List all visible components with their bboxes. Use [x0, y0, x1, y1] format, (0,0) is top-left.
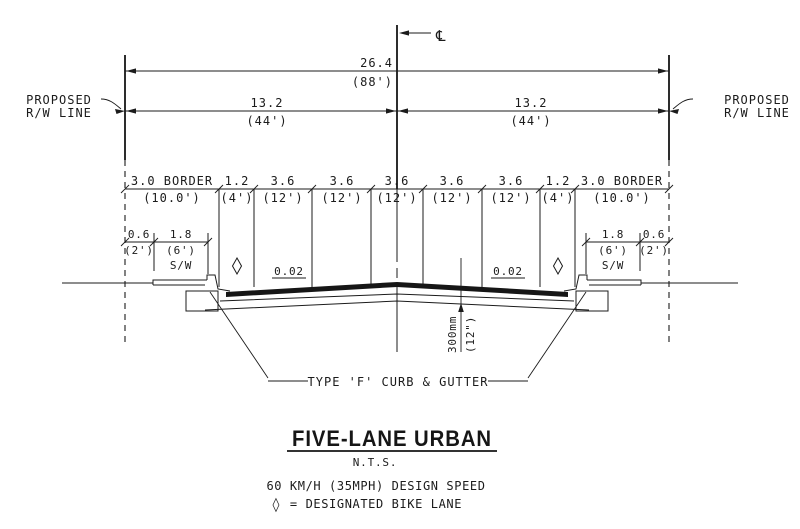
arrowhead-icon	[658, 68, 668, 73]
arrowhead-icon	[658, 108, 668, 113]
sw-dim: 0.6	[643, 228, 665, 241]
drawing-canvas: ℄ 26.4 (88') 13.2 (44') 13.2 (44') PROPO…	[0, 0, 800, 529]
curb-callout: TYPE 'F' CURB & GUTTER	[210, 292, 586, 389]
lane-label-ft: (12')	[376, 191, 417, 205]
depth-metric: 300mm	[446, 316, 459, 353]
rw-right-line2: R/W LINE	[724, 106, 790, 120]
rw-label-right: PROPOSED R/W LINE	[669, 93, 790, 120]
lane-label-ft: (12')	[490, 191, 531, 205]
bike-lane-diamond-icon	[554, 258, 563, 274]
scale-note: N.T.S.	[353, 456, 398, 469]
arrowhead-icon	[126, 68, 136, 73]
bike-lane-diamond-icon	[233, 258, 242, 274]
dim-left-half-metric: 13.2	[251, 96, 284, 110]
lane-label: 3.6	[271, 174, 296, 188]
sidewalk-right	[587, 280, 641, 285]
sidewalk-left	[153, 280, 207, 285]
curb-callout-text: TYPE 'F' CURB & GUTTER	[308, 375, 489, 389]
dim-left-half: 13.2 (44')	[125, 96, 397, 128]
rw-left-line1: PROPOSED	[26, 93, 92, 107]
lane-label: 3.0 BORDER	[131, 174, 213, 188]
curb-base-left	[186, 291, 218, 311]
arrowhead-icon	[126, 108, 136, 113]
dim-left-half-imperial: (44')	[246, 114, 287, 128]
dim-sidewalk-left: 0.6 (2') 1.8 (6') S/W	[121, 228, 212, 274]
arrowhead-icon	[669, 109, 679, 114]
sw-dim-ft: (2')	[639, 244, 669, 257]
lane-label: 3.0 BORDER	[581, 174, 663, 188]
rw-left-line2: R/W LINE	[26, 106, 92, 120]
slope-value: 0.02	[274, 265, 304, 278]
lane-label-ft: (4')	[542, 191, 575, 205]
roadway-cross-section-drawing: ℄ 26.4 (88') 13.2 (44') 13.2 (44') PROPO…	[0, 0, 800, 529]
rw-right-line1: PROPOSED	[724, 93, 790, 107]
dim-right-half: 13.2 (44')	[397, 96, 669, 128]
slope-label-left: 0.02	[272, 265, 306, 278]
sw-dim-ft: (6')	[166, 244, 196, 257]
sidewalk-label: S/W	[170, 259, 192, 272]
lane-label-ft: (12')	[321, 191, 362, 205]
centerline-symbol: ℄	[435, 27, 446, 45]
section-profile	[62, 275, 738, 311]
lane-label-ft: (10.0')	[593, 191, 651, 205]
dim-overall-imperial: (88')	[352, 75, 393, 89]
dim-right-half-imperial: (44')	[510, 114, 551, 128]
sw-dim: 1.8	[170, 228, 192, 241]
slope-value: 0.02	[493, 265, 523, 278]
lane-label-ft: (12')	[262, 191, 303, 205]
arrowhead-icon	[386, 108, 396, 113]
lane-label: 3.6	[385, 174, 410, 188]
arrowhead-icon	[398, 108, 408, 113]
dim-depth: 300mm (12")	[446, 258, 477, 353]
sw-dim-ft: (6')	[598, 244, 628, 257]
depth-imperial: (12")	[464, 316, 477, 353]
sidewalk-label: S/W	[602, 259, 624, 272]
lane-label: 3.6	[440, 174, 465, 188]
lane-label: 1.2	[546, 174, 571, 188]
title-block: FIVE-LANE URBAN N.T.S. 60 KM/H (35MPH) D…	[266, 426, 497, 513]
lane-label: 3.6	[330, 174, 355, 188]
lane-label-ft: (4')	[221, 191, 254, 205]
lane-label: 3.6	[499, 174, 524, 188]
arrowhead-icon	[115, 109, 125, 114]
legend-diamond-icon: ◊	[273, 497, 280, 513]
dim-overall-metric: 26.4	[360, 56, 393, 70]
rw-label-left: PROPOSED R/W LINE	[26, 93, 125, 120]
lane-label: 1.2	[225, 174, 250, 188]
sw-dim: 1.8	[602, 228, 624, 241]
drawing-title: FIVE-LANE URBAN	[292, 426, 492, 451]
lane-label-ft: (12')	[431, 191, 472, 205]
slope-label-right: 0.02	[491, 265, 525, 278]
sw-dim-ft: (2')	[124, 244, 154, 257]
curb-base-right	[576, 291, 608, 311]
dim-right-half-metric: 13.2	[515, 96, 548, 110]
dim-sidewalk-right: 1.8 (6') 0.6 (2') S/W	[582, 228, 673, 274]
centerline-callout: ℄	[399, 27, 446, 45]
arrowhead-icon	[399, 30, 409, 35]
legend-text: = DESIGNATED BIKE LANE	[290, 497, 462, 511]
sw-dim: 0.6	[128, 228, 150, 241]
lane-label-ft: (10.0')	[143, 191, 201, 205]
design-speed-note: 60 KM/H (35MPH) DESIGN SPEED	[266, 479, 485, 493]
